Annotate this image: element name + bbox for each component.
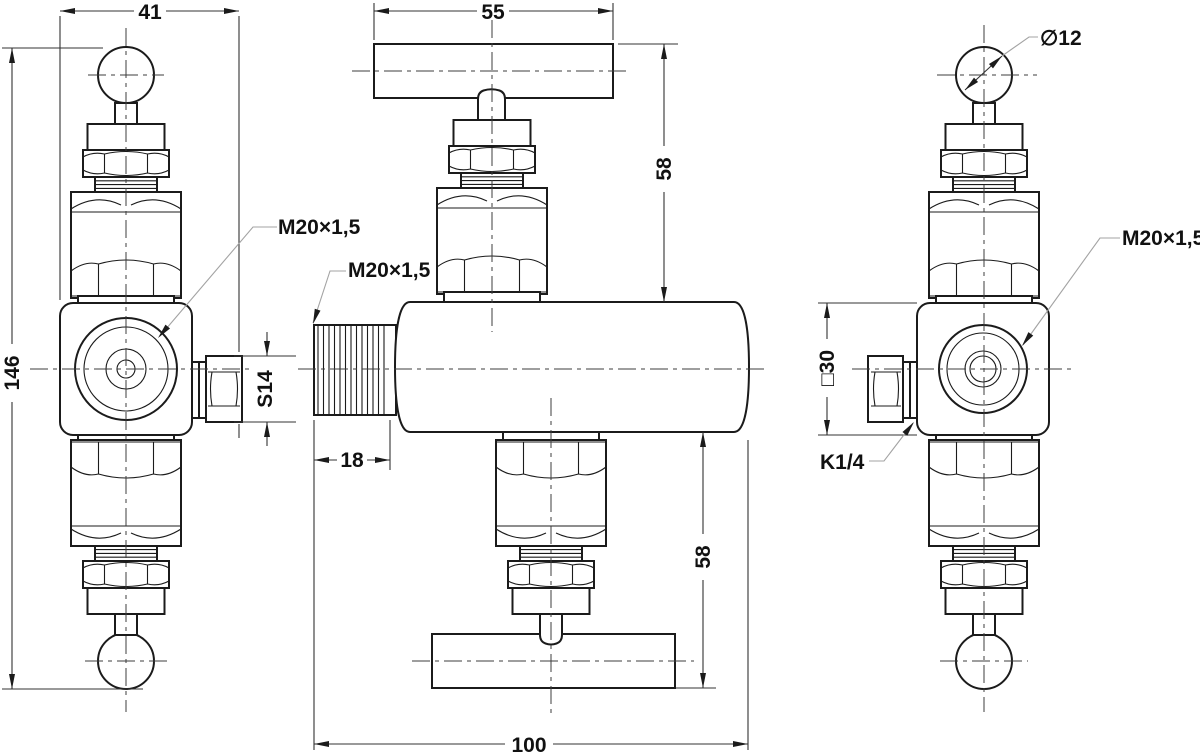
dim-18-label: 18	[340, 449, 364, 472]
dim-146-label: 146	[1, 355, 24, 390]
left-view	[30, 28, 252, 712]
dim-100-label: 100	[511, 734, 546, 755]
right-side-port	[868, 356, 917, 422]
dim-41-label: 41	[138, 1, 162, 24]
technical-drawing-page: 41 146 S14 M20×1,5 55 58 58	[0, 0, 1200, 755]
valve-manifold-drawing: 41 146 S14 M20×1,5 55 58 58	[0, 0, 1200, 755]
dia12-label: ∅12	[1040, 27, 1082, 50]
k14-label: K1/4	[820, 451, 865, 474]
m20-gauge-label: M20×1,5	[1122, 227, 1200, 250]
dim-58-upper: 58	[618, 44, 678, 302]
lower-valve	[432, 432, 675, 688]
dim-s14-label: S14	[254, 370, 277, 408]
side-port-hex	[206, 356, 242, 422]
dim-58-upper-label: 58	[653, 157, 676, 181]
dim-18: 18	[314, 420, 390, 472]
leader-k14: K1/4	[820, 420, 916, 474]
dim-58-lower-label: 58	[692, 545, 715, 569]
left-side-port	[192, 356, 242, 422]
manifold-body	[395, 302, 749, 432]
m20-left-label: M20×1,5	[278, 216, 361, 239]
square30-label: □30	[816, 350, 839, 386]
dim-55: 55	[374, 1, 613, 40]
inlet-nipple	[314, 325, 396, 415]
dim-s14: S14	[234, 332, 296, 446]
dim-58-lower: 58	[676, 432, 716, 688]
front-view	[298, 20, 764, 716]
right-view	[852, 25, 1075, 712]
dim-55-label: 55	[481, 1, 505, 24]
m20-inlet-label: M20×1,5	[348, 259, 431, 282]
